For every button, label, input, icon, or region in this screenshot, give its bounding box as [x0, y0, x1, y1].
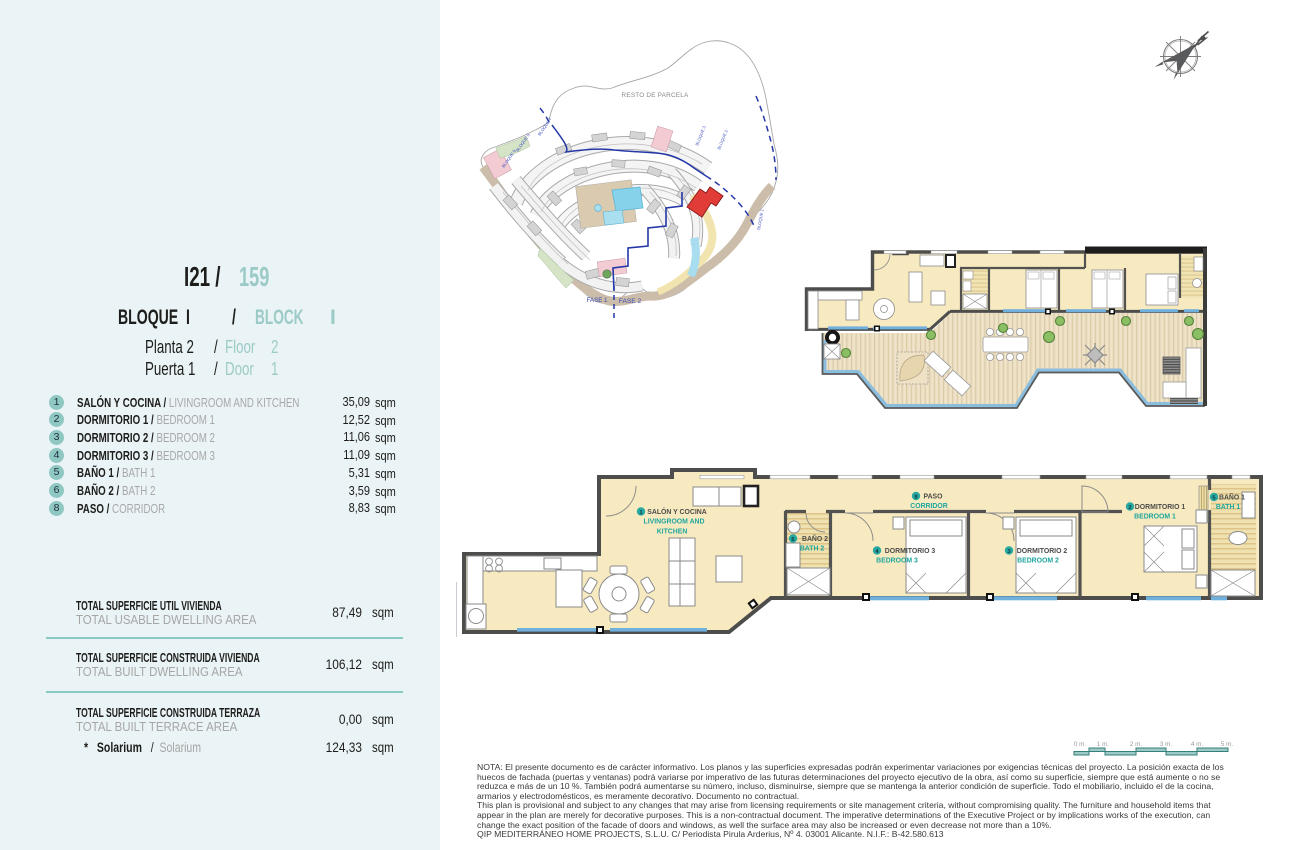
- svg-text:SALÓN Y COCINA: SALÓN Y COCINA: [647, 507, 706, 516]
- svg-text:DORMITORIO 2: DORMITORIO 2: [1017, 548, 1068, 555]
- svg-text:4 m.: 4 m.: [1191, 741, 1203, 748]
- svg-text:FASE 2: FASE 2: [619, 298, 642, 305]
- svg-text:2 m.: 2 m.: [1130, 741, 1142, 748]
- svg-text:BEDROOM 2: BEDROOM 2: [1017, 558, 1059, 565]
- svg-text:CORRIDOR: CORRIDOR: [910, 503, 948, 510]
- svg-text:5 m.: 5 m.: [1221, 741, 1233, 748]
- svg-text:BATH 2: BATH 2: [800, 546, 825, 553]
- svg-text:KITCHEN: KITCHEN: [657, 528, 688, 535]
- svg-text:RESTO DE PARCELA: RESTO DE PARCELA: [622, 92, 689, 99]
- svg-text:1 m.: 1 m.: [1097, 741, 1109, 748]
- svg-text:3 m.: 3 m.: [1160, 741, 1172, 748]
- svg-text:LIVINGROOM AND: LIVINGROOM AND: [644, 519, 705, 526]
- svg-text:BATH 1: BATH 1: [1216, 504, 1241, 511]
- svg-text:BAÑO 1: BAÑO 1: [1219, 493, 1245, 502]
- svg-text:BAÑO 2: BAÑO 2: [802, 534, 828, 543]
- svg-text:0 m.: 0 m.: [1074, 741, 1086, 748]
- svg-text:BEDROOM 3: BEDROOM 3: [876, 558, 918, 565]
- svg-text:BEDROOM 1: BEDROOM 1: [1134, 514, 1176, 521]
- svg-text:DORMITORIO 1: DORMITORIO 1: [1135, 504, 1186, 511]
- svg-text:PASO: PASO: [923, 494, 943, 501]
- svg-text:DORMITORIO 3: DORMITORIO 3: [885, 548, 936, 555]
- svg-text:2: 2: [1128, 505, 1131, 511]
- svg-text:FASE 1: FASE 1: [587, 297, 609, 304]
